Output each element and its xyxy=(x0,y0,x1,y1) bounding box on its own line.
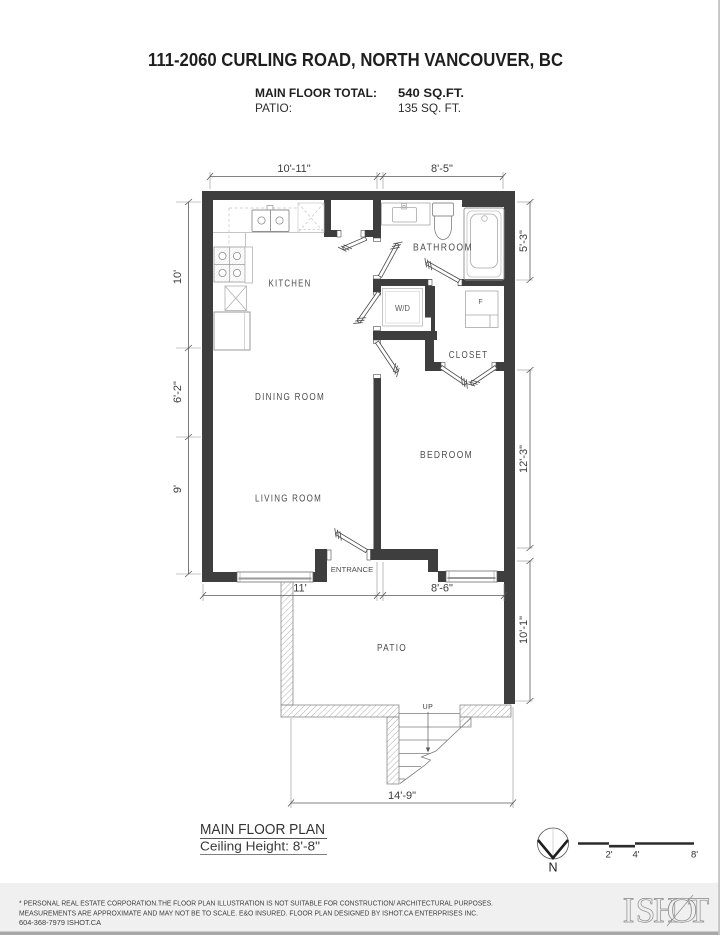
svg-text:12'-3": 12'-3" xyxy=(518,445,530,473)
svg-text:N: N xyxy=(548,861,557,875)
svg-text:11': 11' xyxy=(293,583,307,595)
svg-text:W/D: W/D xyxy=(395,303,410,313)
svg-text:10': 10' xyxy=(172,270,184,284)
svg-text:Ceiling Height: 8'-8": Ceiling Height: 8'-8" xyxy=(200,840,320,854)
svg-text:T: T xyxy=(688,890,710,930)
svg-text:KITCHEN: KITCHEN xyxy=(269,279,312,290)
svg-text:5'-3": 5'-3" xyxy=(518,230,530,252)
svg-text:BEDROOM: BEDROOM xyxy=(420,450,473,461)
svg-text:MAIN FLOOR TOTAL:: MAIN FLOOR TOTAL: xyxy=(255,86,377,100)
svg-text:6'-2": 6'-2" xyxy=(172,381,184,403)
svg-text:DINING ROOM: DINING ROOM xyxy=(255,392,325,403)
svg-text:UP: UP xyxy=(423,704,434,711)
svg-text:8'-5": 8'-5" xyxy=(431,163,453,175)
svg-text:LIVING ROOM: LIVING ROOM xyxy=(255,494,322,505)
svg-text:MAIN FLOOR PLAN: MAIN FLOOR PLAN xyxy=(200,821,325,838)
svg-text:MEASUREMENTS ARE APPROXIMATE A: MEASUREMENTS ARE APPROXIMATE AND MAY NOT… xyxy=(19,910,478,917)
svg-text:14'-9": 14'-9" xyxy=(388,790,416,802)
svg-text:604-368-7979 ISHOT.CA: 604-368-7979 ISHOT.CA xyxy=(19,920,101,927)
svg-text:F: F xyxy=(478,299,482,306)
svg-text:135 SQ. FT.: 135 SQ. FT. xyxy=(398,101,461,115)
svg-text:CLOSET: CLOSET xyxy=(449,350,489,361)
svg-text:4': 4' xyxy=(632,850,639,861)
svg-text:PATIO: PATIO xyxy=(377,642,407,654)
svg-text:PATIO:: PATIO: xyxy=(255,101,292,115)
svg-text:111-2060 CURLING ROAD, NORTH V: 111-2060 CURLING ROAD, NORTH VANCOUVER, … xyxy=(148,49,563,70)
svg-text:BATHROOM: BATHROOM xyxy=(413,243,473,254)
svg-text:540 SQ.FT.: 540 SQ.FT. xyxy=(398,86,464,100)
svg-text:8'-6": 8'-6" xyxy=(431,583,453,595)
svg-text:ENTRANCE: ENTRANCE xyxy=(331,565,374,574)
svg-text:10'-11": 10'-11" xyxy=(277,163,310,175)
svg-text:9': 9' xyxy=(172,485,184,493)
svg-text:2': 2' xyxy=(605,850,612,861)
svg-text:* PERSONAL REAL ESTATE CORPORA: * PERSONAL REAL ESTATE CORPORATION.THE F… xyxy=(19,901,493,908)
svg-text:10'-1": 10'-1" xyxy=(518,616,530,644)
svg-text:8': 8' xyxy=(691,850,698,861)
svg-text:I: I xyxy=(623,890,635,930)
